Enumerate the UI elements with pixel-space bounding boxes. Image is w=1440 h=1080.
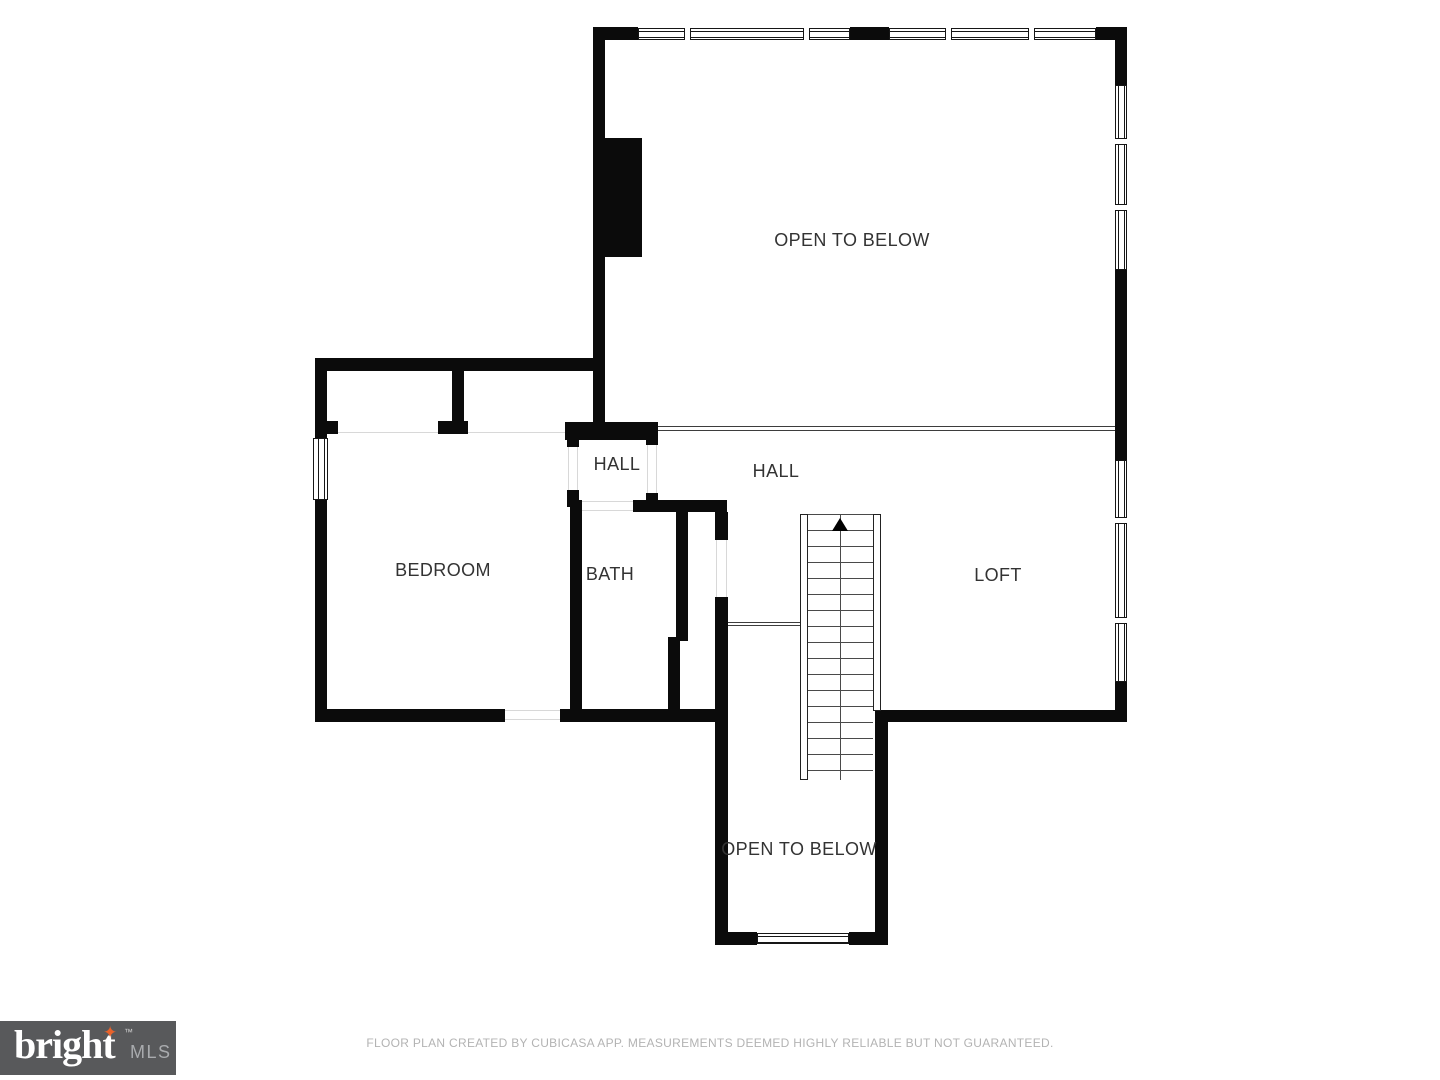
room-label-hall-small: HALL: [594, 454, 641, 475]
wall-segment: [315, 500, 327, 722]
stair-stringer: [800, 514, 808, 780]
wall-segment: [875, 710, 1127, 722]
window: [1115, 460, 1127, 682]
wall-segment: [1115, 27, 1127, 85]
stair-handrail: [728, 622, 800, 626]
room-label-hall-main: HALL: [753, 461, 800, 482]
room-label-loft: LOFT: [974, 565, 1022, 586]
window-mullion: [1115, 517, 1127, 524]
wall-segment: [850, 27, 889, 40]
stair-center-line: [840, 514, 841, 780]
wall-segment: [676, 512, 688, 641]
door-threshold: [582, 501, 633, 502]
room-label-bath: BATH: [586, 564, 634, 585]
logo-brand-text: bright: [14, 1023, 115, 1067]
window: [889, 28, 1096, 40]
window: [1115, 85, 1127, 270]
wall-segment: [715, 932, 757, 945]
door-threshold: [716, 540, 717, 597]
wall-segment: [715, 597, 728, 945]
wall-segment: [1115, 270, 1127, 460]
window-mullion: [1028, 28, 1035, 40]
wall-segment: [715, 512, 728, 540]
wall-segment: [668, 637, 680, 709]
window: [313, 438, 328, 500]
fireplace-chimney: [603, 138, 642, 257]
wall-segment: [849, 932, 888, 945]
door-threshold: [338, 432, 438, 433]
wall-segment: [315, 421, 338, 434]
window-mullion: [1115, 617, 1127, 624]
door-threshold: [577, 447, 578, 490]
door-threshold: [568, 447, 569, 490]
stair-up-arrow-icon: [832, 518, 848, 531]
logo-mls-text: MLS: [130, 1043, 172, 1061]
door-threshold: [505, 710, 560, 711]
stair-stringer: [873, 514, 881, 711]
door-threshold: [582, 510, 633, 511]
wall-segment: [315, 358, 605, 371]
bright-mls-logo: bright ✦ ™ MLS: [0, 1021, 176, 1075]
window-mullion: [1115, 138, 1127, 145]
window-mullion: [803, 28, 810, 40]
wall-segment: [565, 422, 658, 440]
room-label-bedroom: BEDROOM: [395, 560, 491, 581]
window-mullion: [1115, 204, 1127, 211]
trademark-symbol: ™: [124, 1028, 133, 1037]
four-point-star-icon: ✦: [103, 1024, 117, 1041]
wall-segment: [633, 500, 727, 512]
door-threshold: [647, 445, 648, 493]
wall-segment: [570, 500, 582, 709]
wall-segment: [315, 709, 505, 722]
door-threshold: [505, 719, 560, 720]
railing: [658, 426, 1115, 431]
window: [757, 933, 849, 944]
window-mullion: [945, 28, 952, 40]
room-label-open-to-below-lower: OPEN TO BELOW: [721, 839, 877, 860]
wall-segment: [567, 440, 579, 447]
room-label-open-to-below-upper: OPEN TO BELOW: [774, 230, 930, 251]
window: [638, 28, 850, 40]
door-threshold: [468, 432, 565, 433]
floor-plan: OPEN TO BELOW HALL HALL BEDROOM BATH LOF…: [0, 0, 1440, 1080]
window-mullion: [684, 28, 691, 40]
footer-disclaimer: FLOOR PLAN CREATED BY CUBICASA APP. MEAS…: [366, 1036, 1053, 1050]
wall-segment: [438, 421, 468, 434]
wall-segment: [875, 722, 888, 945]
wall-segment: [560, 709, 728, 722]
door-threshold: [656, 445, 657, 493]
door-threshold: [726, 540, 727, 597]
